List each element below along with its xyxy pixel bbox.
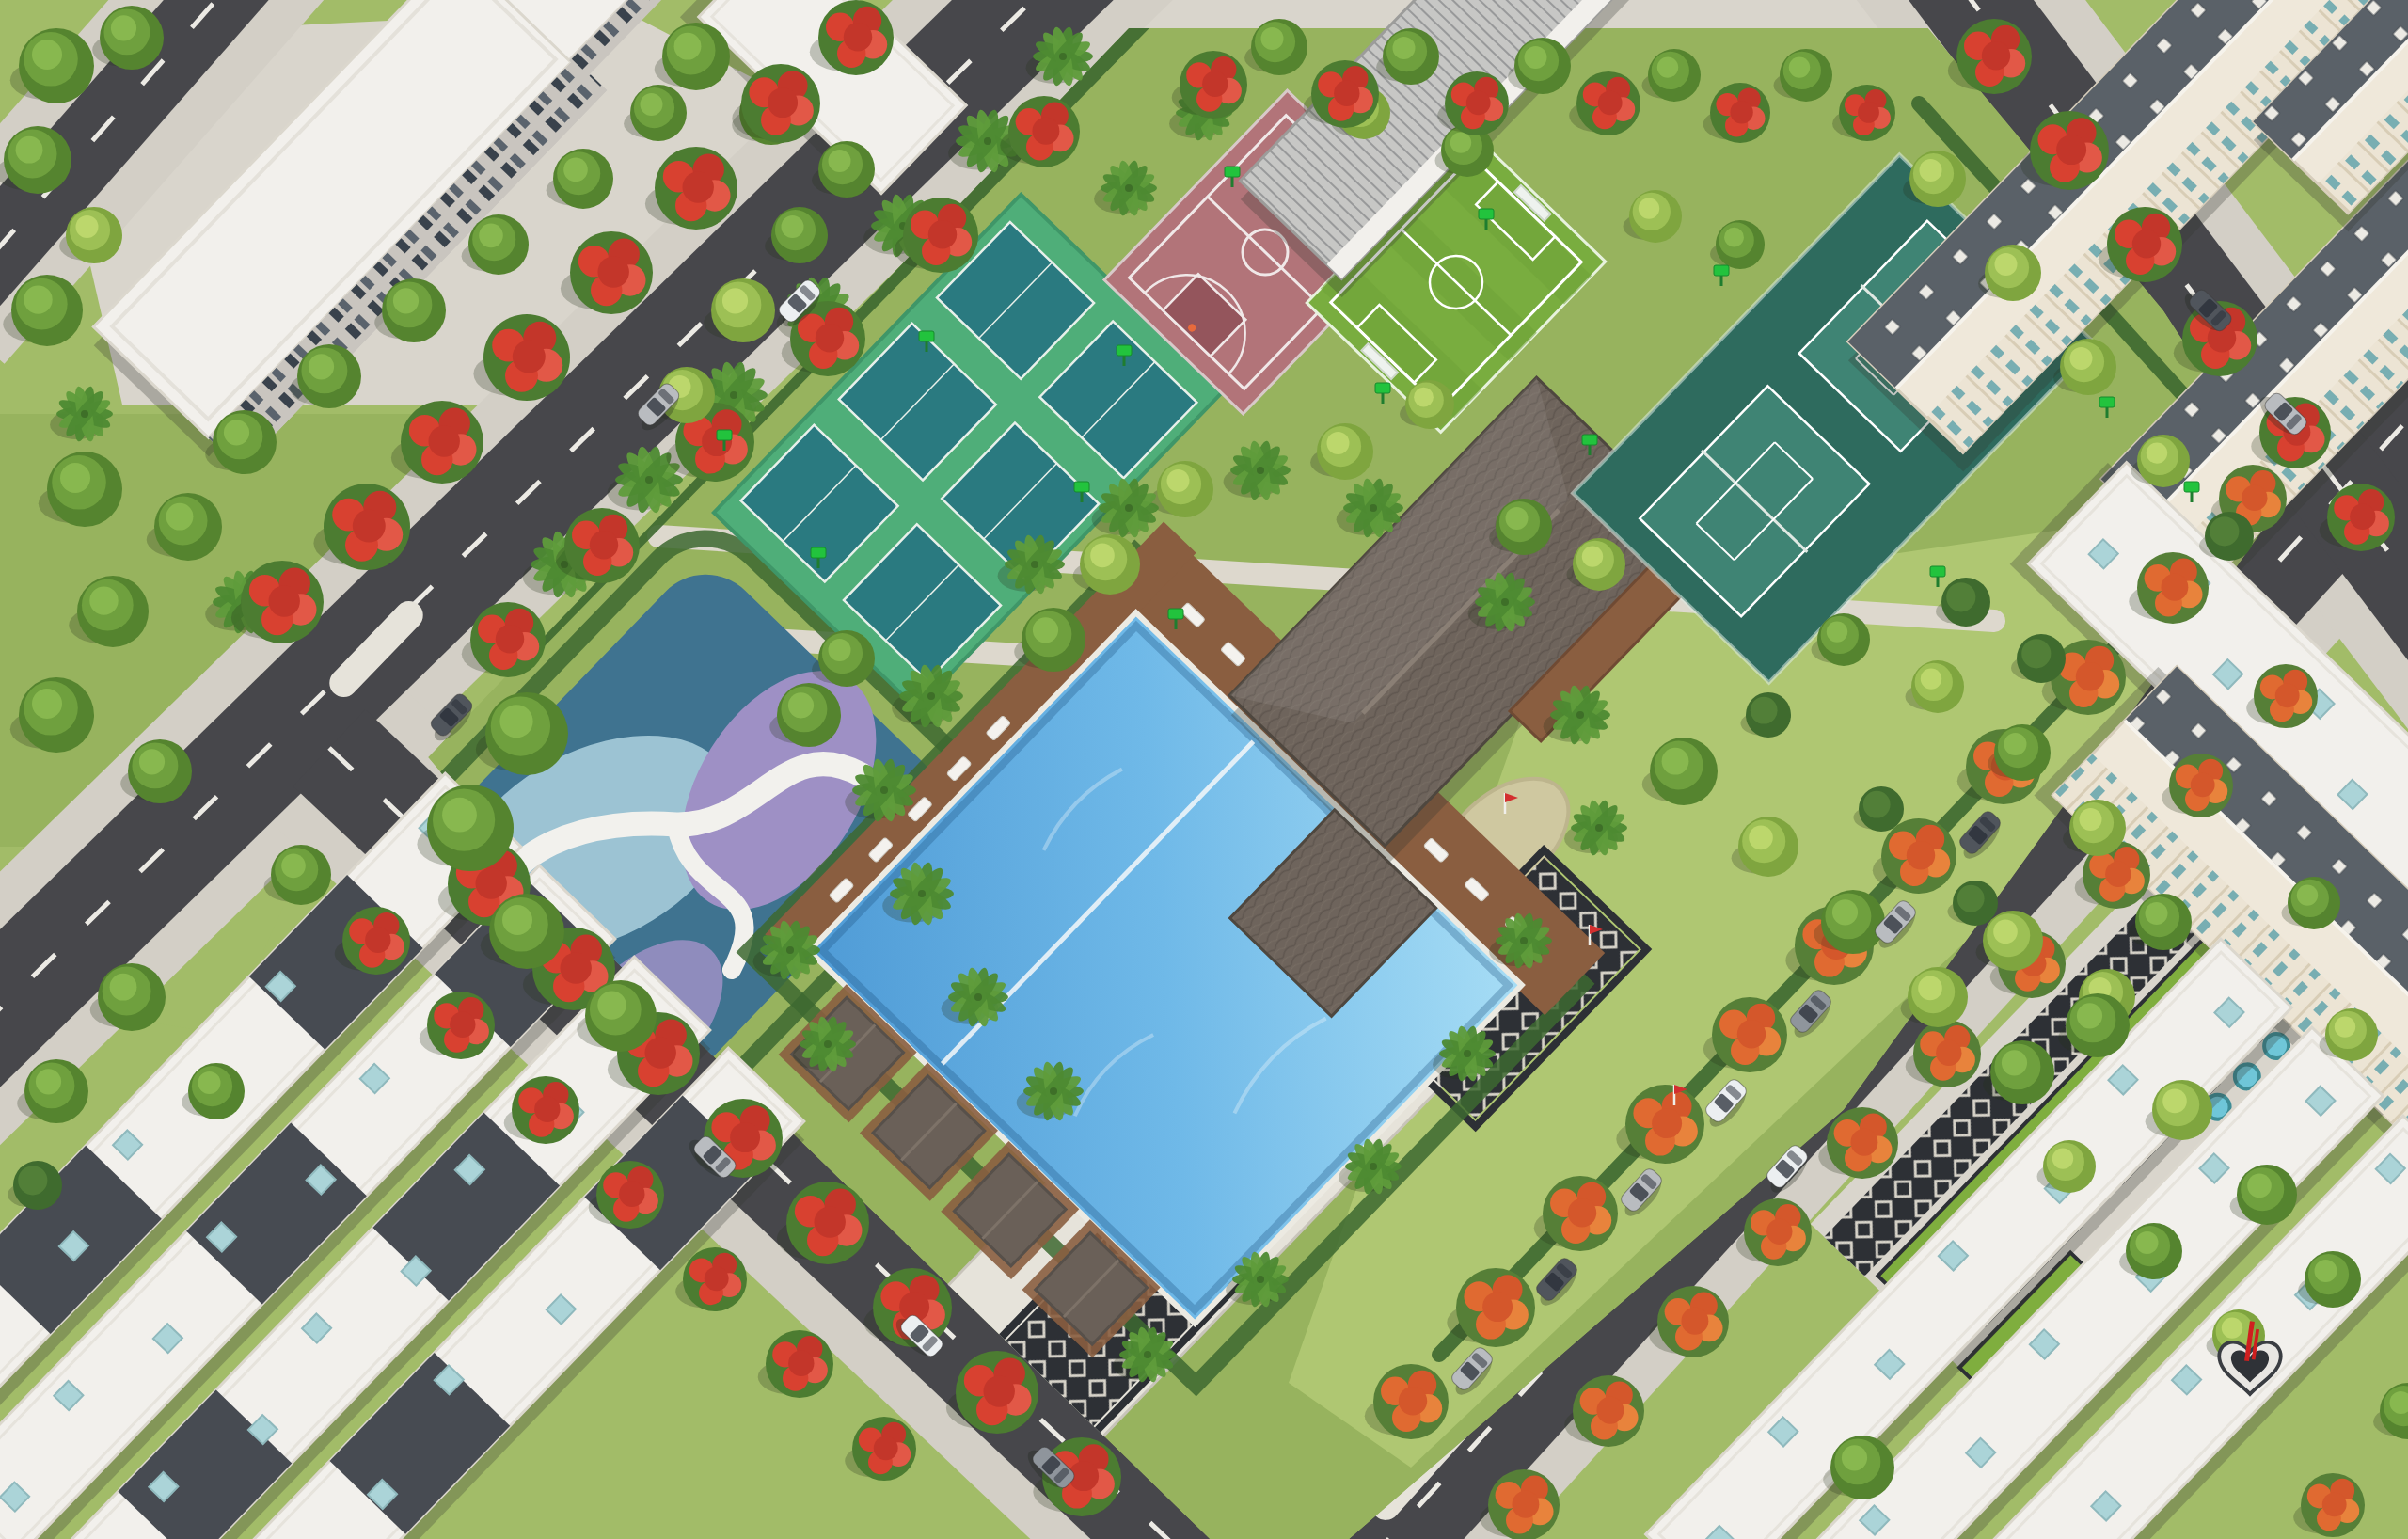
palm-crown	[1370, 504, 1377, 512]
light-head	[1582, 435, 1597, 445]
bush-highlight	[1946, 582, 1975, 611]
bloom	[1334, 81, 1359, 106]
canopy-highlight	[2080, 808, 2102, 831]
light-head	[1117, 345, 1132, 356]
bloom	[1202, 71, 1228, 97]
canopy-highlight	[2146, 902, 2168, 925]
bloom	[768, 87, 798, 118]
bloom	[1681, 1308, 1708, 1335]
canopy-highlight	[2297, 884, 2318, 905]
light-head	[1930, 566, 1945, 577]
canopy-highlight	[829, 150, 851, 172]
canopy-highlight	[1827, 621, 1847, 642]
bloom	[365, 928, 390, 953]
bush-highlight	[18, 1166, 47, 1195]
canopy-highlight	[2077, 1003, 2102, 1028]
canopy-highlight	[499, 705, 532, 738]
bush-highlight	[1957, 885, 1985, 912]
palm-crown	[984, 137, 991, 145]
bloom	[1512, 1491, 1539, 1518]
canopy-highlight	[1414, 388, 1434, 407]
canopy-highlight	[1995, 253, 2018, 276]
bloom	[353, 510, 386, 543]
canopy-highlight	[139, 749, 165, 774]
bush-highlight	[2021, 639, 2051, 668]
bloom	[496, 625, 524, 653]
bloom	[874, 1436, 898, 1460]
canopy-highlight	[2315, 1260, 2337, 1282]
palm-crown	[1257, 1276, 1264, 1283]
bloom	[1596, 1397, 1624, 1424]
bloom	[844, 23, 872, 51]
canopy-highlight	[1993, 920, 2018, 944]
bloom	[2161, 574, 2188, 601]
canopy-highlight	[32, 689, 62, 719]
canopy-highlight	[1789, 56, 1810, 77]
bloom	[1032, 118, 1059, 145]
palm-crown	[880, 786, 888, 794]
canopy-highlight	[502, 905, 532, 935]
bloom	[1982, 41, 2010, 70]
bloom	[1598, 90, 1623, 115]
palm-crown	[824, 1040, 832, 1048]
canopy-highlight	[2070, 347, 2093, 370]
bloom	[428, 425, 459, 456]
bloom	[597, 256, 628, 287]
canopy-highlight	[198, 1071, 221, 1094]
canopy-highlight	[479, 224, 503, 248]
bloom	[1907, 841, 1935, 869]
bloom	[644, 1037, 675, 1068]
palm-crown	[1576, 711, 1584, 719]
bloom	[560, 952, 591, 983]
canopy-highlight	[1662, 748, 1689, 775]
light-head	[1168, 609, 1183, 619]
palm-crown	[1125, 504, 1133, 512]
light-head	[717, 430, 732, 440]
light-head	[2099, 397, 2115, 407]
canopy-highlight	[1749, 826, 1773, 850]
canopy-highlight	[36, 1069, 61, 1094]
bloom	[590, 531, 618, 559]
canopy-highlight	[89, 586, 118, 614]
canopy-highlight	[1393, 37, 1416, 59]
canopy-highlight	[1033, 617, 1058, 643]
canopy-highlight	[2002, 1050, 2027, 1075]
palm-crown	[1059, 53, 1067, 60]
bloom	[2191, 772, 2215, 797]
bloom	[816, 324, 844, 352]
canopy-highlight	[2162, 1089, 2187, 1114]
canopy-highlight	[563, 158, 588, 182]
light-head	[1375, 383, 1390, 393]
light-head	[811, 547, 826, 558]
palm-crown	[645, 476, 653, 484]
bloom	[814, 1206, 845, 1237]
canopy-highlight	[1842, 1445, 1867, 1470]
light-head	[1714, 265, 1729, 276]
bloom	[1466, 90, 1491, 115]
palm-crown	[1144, 1351, 1151, 1358]
canopy-highlight	[782, 215, 804, 238]
canopy-highlight	[1921, 668, 1941, 689]
canopy-highlight	[309, 354, 334, 379]
canopy-highlight	[281, 854, 306, 879]
bloom	[1652, 1108, 1682, 1138]
canopy-highlight	[393, 288, 419, 313]
bloom	[2322, 1492, 2347, 1516]
bloom	[534, 1097, 560, 1122]
canopy-highlight	[24, 285, 52, 313]
bush-highlight	[1751, 697, 1778, 724]
scene-root	[0, 0, 2408, 1539]
canopy-highlight	[2247, 1174, 2272, 1198]
canopy-highlight	[76, 215, 99, 238]
bush-highlight	[1863, 791, 1891, 818]
canopy-highlight	[1918, 976, 1942, 1001]
canopy-highlight	[60, 463, 90, 493]
canopy-highlight	[1506, 507, 1529, 530]
bloom	[1936, 1040, 1961, 1066]
canopy-highlight	[166, 503, 194, 531]
canopy-highlight	[1327, 432, 1350, 454]
canopy-highlight	[1090, 544, 1115, 568]
palm-crown	[974, 993, 982, 1001]
canopy-highlight	[32, 40, 62, 70]
canopy-highlight	[110, 974, 137, 1001]
bush-highlight	[2210, 516, 2239, 546]
canopy-highlight	[1582, 546, 1603, 566]
bloom	[2076, 662, 2104, 690]
bloom	[450, 1012, 475, 1038]
canopy-highlight	[1167, 469, 1190, 492]
bloom	[2275, 683, 2300, 707]
canopy-highlight	[2004, 733, 2027, 755]
aerial-masterplan-render	[0, 0, 2408, 1539]
light-head	[1074, 482, 1089, 492]
canopy-highlight	[2222, 1317, 2242, 1338]
canopy-highlight	[1832, 899, 1858, 925]
bloom	[788, 1351, 814, 1376]
palm-crown	[1031, 561, 1038, 568]
bloom	[1482, 1292, 1513, 1322]
canopy-highlight	[1525, 46, 1547, 69]
light-head	[2184, 482, 2199, 492]
bloom	[1737, 1020, 1766, 1048]
canopy-highlight	[442, 798, 477, 833]
palm-crown	[1501, 598, 1509, 606]
canopy-highlight	[1261, 27, 1284, 50]
bloom	[1399, 1387, 1427, 1415]
palm-crown	[918, 890, 926, 897]
canopy-highlight	[788, 692, 814, 718]
bloom	[2350, 504, 2375, 530]
bloom	[983, 1375, 1014, 1406]
masterplan-svg	[0, 0, 2408, 1539]
canopy-highlight	[2052, 1148, 2073, 1168]
bloom	[2242, 485, 2267, 511]
canopy-highlight	[2147, 442, 2167, 463]
canopy-highlight	[1657, 56, 1678, 77]
canopy-highlight	[2335, 1016, 2355, 1037]
canopy-highlight	[2136, 1231, 2159, 1254]
canopy-highlight	[1639, 198, 1659, 218]
canopy-highlight	[16, 136, 43, 164]
light-head	[1479, 209, 1494, 219]
palm-crown	[1595, 824, 1603, 832]
bloom	[268, 585, 299, 616]
canopy-highlight	[829, 639, 851, 661]
palm-crown	[1257, 467, 1264, 474]
canopy-highlight	[597, 991, 626, 1019]
bloom	[1766, 1219, 1792, 1245]
bloom	[619, 1182, 644, 1207]
bloom	[705, 1266, 729, 1291]
palm-crown	[1520, 937, 1528, 944]
palm-crown	[1050, 1087, 1057, 1095]
bloom	[475, 867, 506, 898]
light-head	[919, 331, 934, 341]
palm-crown	[81, 410, 88, 418]
palm-crown	[1125, 184, 1133, 192]
canopy-highlight	[674, 33, 702, 60]
canopy-highlight	[1920, 159, 1942, 182]
bloom	[2105, 862, 2131, 887]
bloom	[2056, 135, 2086, 165]
bloom	[928, 220, 957, 248]
bloom	[1568, 1198, 1596, 1227]
bloom	[1730, 101, 1752, 123]
light-head	[1225, 167, 1240, 177]
canopy-highlight	[1450, 132, 1471, 152]
palm-crown	[927, 692, 935, 700]
palm-crown	[1464, 1050, 1471, 1057]
bloom	[1850, 1129, 1877, 1156]
palm-crown	[786, 946, 794, 954]
bloom	[513, 341, 546, 373]
palm-crown	[1370, 1163, 1377, 1170]
canopy-highlight	[111, 15, 136, 40]
palm-crown	[730, 391, 737, 399]
bloom	[1858, 102, 1879, 123]
canopy-highlight	[224, 420, 249, 445]
bloom	[682, 171, 713, 202]
canopy-highlight	[641, 93, 663, 116]
bloom	[2132, 230, 2161, 258]
bloom	[730, 1122, 760, 1152]
canopy-highlight	[1724, 228, 1744, 247]
canopy-highlight	[722, 288, 748, 313]
